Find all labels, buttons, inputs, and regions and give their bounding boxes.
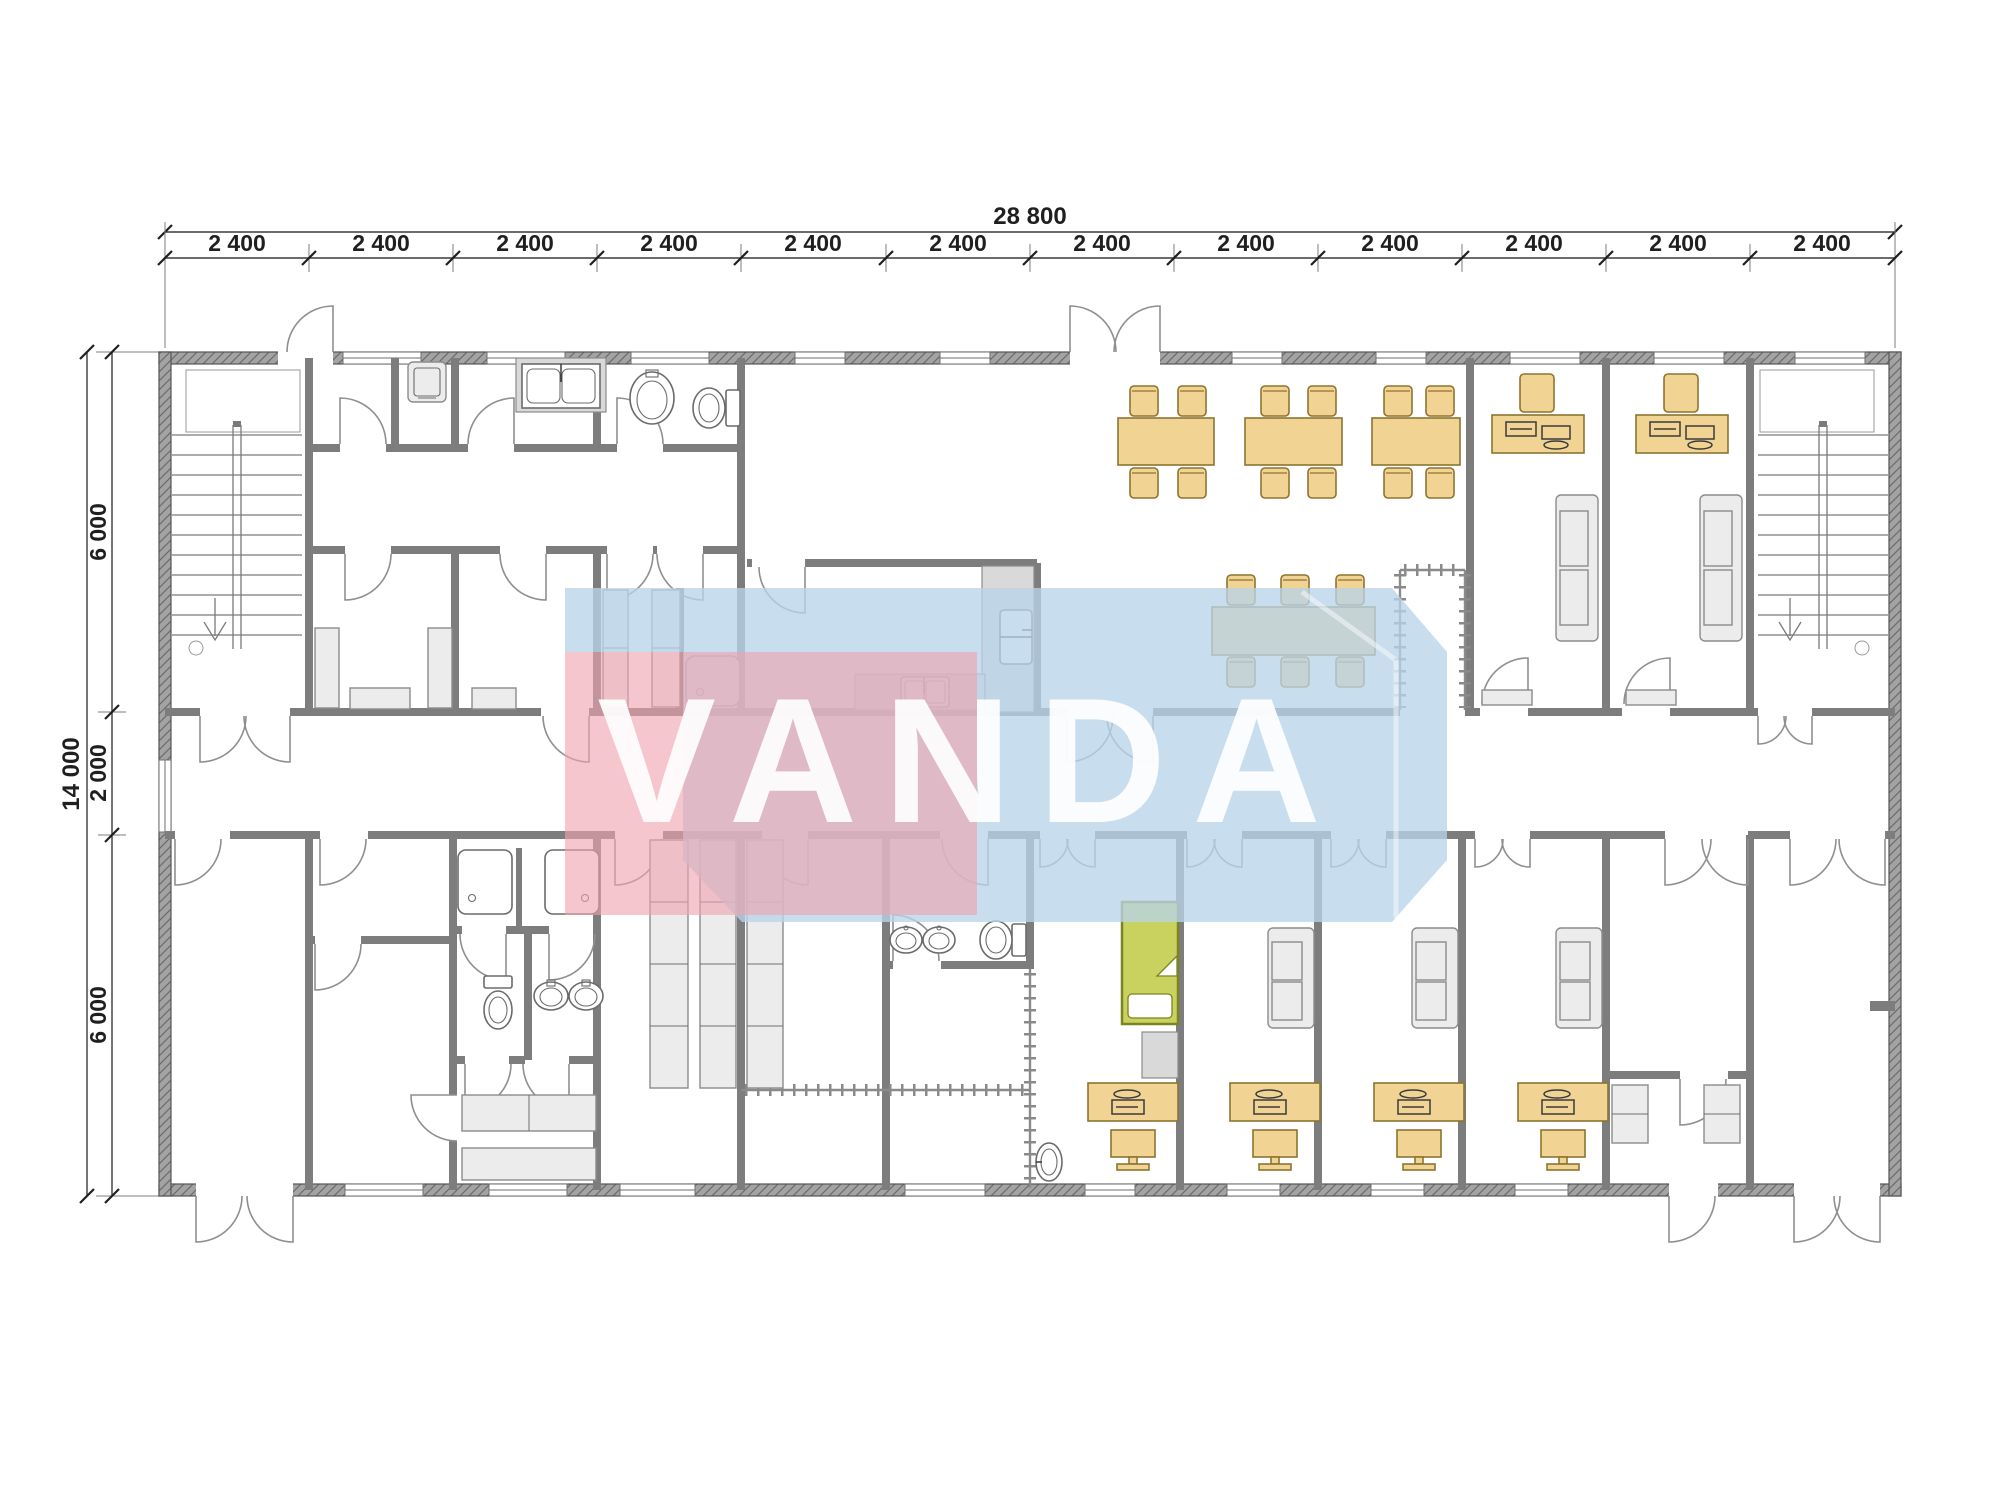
- desk-set: [1088, 1083, 1178, 1170]
- window: [1232, 352, 1282, 364]
- closet: [428, 628, 452, 708]
- sofa: [1268, 928, 1314, 1028]
- locker-bench: [462, 1095, 596, 1131]
- bench: [472, 688, 516, 709]
- dim-total-width: 28 800: [993, 203, 1066, 230]
- dining-table-2: [1245, 386, 1342, 498]
- window: [1371, 1184, 1424, 1196]
- window: [1510, 352, 1580, 364]
- window: [1795, 352, 1865, 364]
- window: [1227, 1184, 1280, 1196]
- window: [489, 1184, 567, 1196]
- svg-text:2 400: 2 400: [352, 230, 410, 256]
- window: [345, 1184, 423, 1196]
- svg-text:2 400: 2 400: [784, 230, 842, 256]
- bedroom: [1122, 902, 1178, 1078]
- svg-text:2 400: 2 400: [640, 230, 698, 256]
- closet: [315, 628, 339, 708]
- sofa: [1700, 495, 1742, 641]
- bathroom-sink: [630, 370, 674, 424]
- svg-text:2 400: 2 400: [1649, 230, 1707, 256]
- wall-sink: [923, 926, 955, 953]
- shower-tray: [458, 850, 512, 914]
- bench: [350, 688, 410, 709]
- dim-total-height: 14 000: [58, 737, 85, 810]
- svg-text:6 000: 6 000: [85, 503, 111, 561]
- sofa: [1556, 928, 1602, 1028]
- svg-text:2 400: 2 400: [1073, 230, 1131, 256]
- svg-text:6 000: 6 000: [85, 986, 111, 1044]
- window: [1654, 352, 1724, 364]
- window: [620, 1184, 695, 1196]
- window: [159, 760, 171, 832]
- svg-text:2 400: 2 400: [1505, 230, 1563, 256]
- sofa: [1412, 928, 1458, 1028]
- svg-text:2 400: 2 400: [1793, 230, 1851, 256]
- wall-sink: [534, 980, 568, 1010]
- wall-sink: [890, 926, 922, 953]
- dining-table-1: [1118, 386, 1214, 498]
- window: [940, 352, 990, 364]
- water-heater: [408, 362, 446, 402]
- stairs-right: [1758, 370, 1888, 655]
- window: [795, 352, 845, 364]
- svg-text:2 400: 2 400: [496, 230, 554, 256]
- left-dimensions: 14 000 6 000 2 000 6 000: [58, 345, 160, 1203]
- desk-set: [1374, 1083, 1464, 1170]
- floor-mat: [1482, 690, 1532, 705]
- toilet: [980, 921, 1026, 959]
- utility-room: [1612, 1085, 1740, 1143]
- office-top-2: [1626, 374, 1742, 705]
- sofa: [1556, 495, 1598, 641]
- watermark-text: VANDA: [597, 661, 1347, 860]
- window: [905, 1184, 985, 1196]
- cabinet: [1612, 1085, 1648, 1143]
- svg-text:2 400: 2 400: [1217, 230, 1275, 256]
- door-gap: [1070, 351, 1160, 365]
- stairs-left: [172, 370, 302, 655]
- svg-text:2 400: 2 400: [1361, 230, 1419, 256]
- window: [631, 352, 709, 364]
- toilet: [484, 976, 512, 1029]
- window: [1515, 1184, 1568, 1196]
- nightstand: [1142, 1032, 1178, 1078]
- bottom-desks: [1088, 1083, 1608, 1170]
- floor-plan-page: 28 800 2 400 2 400 2 400 2 400 2 400 2 4…: [0, 0, 2000, 1500]
- desk-set: [1230, 1083, 1320, 1170]
- door-gap: [196, 1183, 293, 1197]
- watermark: VANDA: [565, 588, 1447, 922]
- desk-set: [1518, 1083, 1608, 1170]
- door-gap: [1669, 1183, 1718, 1197]
- dining-table-3: [1372, 386, 1460, 498]
- svg-text:2 000: 2 000: [85, 744, 111, 802]
- top-dimensions: 28 800 2 400 2 400 2 400 2 400 2 400 2 4…: [158, 203, 1902, 348]
- locker-bench: [462, 1148, 596, 1180]
- door-gap: [1794, 1183, 1880, 1197]
- mop-basin: [1036, 1143, 1062, 1181]
- svg-text:2 400: 2 400: [929, 230, 987, 256]
- toilet: [693, 388, 740, 428]
- left-dimension-labels: 6 000 2 000 6 000: [85, 503, 111, 1044]
- cabinet: [1704, 1085, 1740, 1143]
- top-offices: [1482, 374, 1742, 705]
- window: [1085, 1184, 1135, 1196]
- office-top-1: [1482, 374, 1598, 705]
- window: [1376, 352, 1426, 364]
- floor-mat: [1626, 690, 1676, 705]
- floor-plan-svg: 28 800 2 400 2 400 2 400 2 400 2 400 2 4…: [0, 0, 2000, 1500]
- svg-text:2 400: 2 400: [208, 230, 266, 256]
- window: [343, 352, 421, 364]
- washing-machine: [516, 358, 606, 412]
